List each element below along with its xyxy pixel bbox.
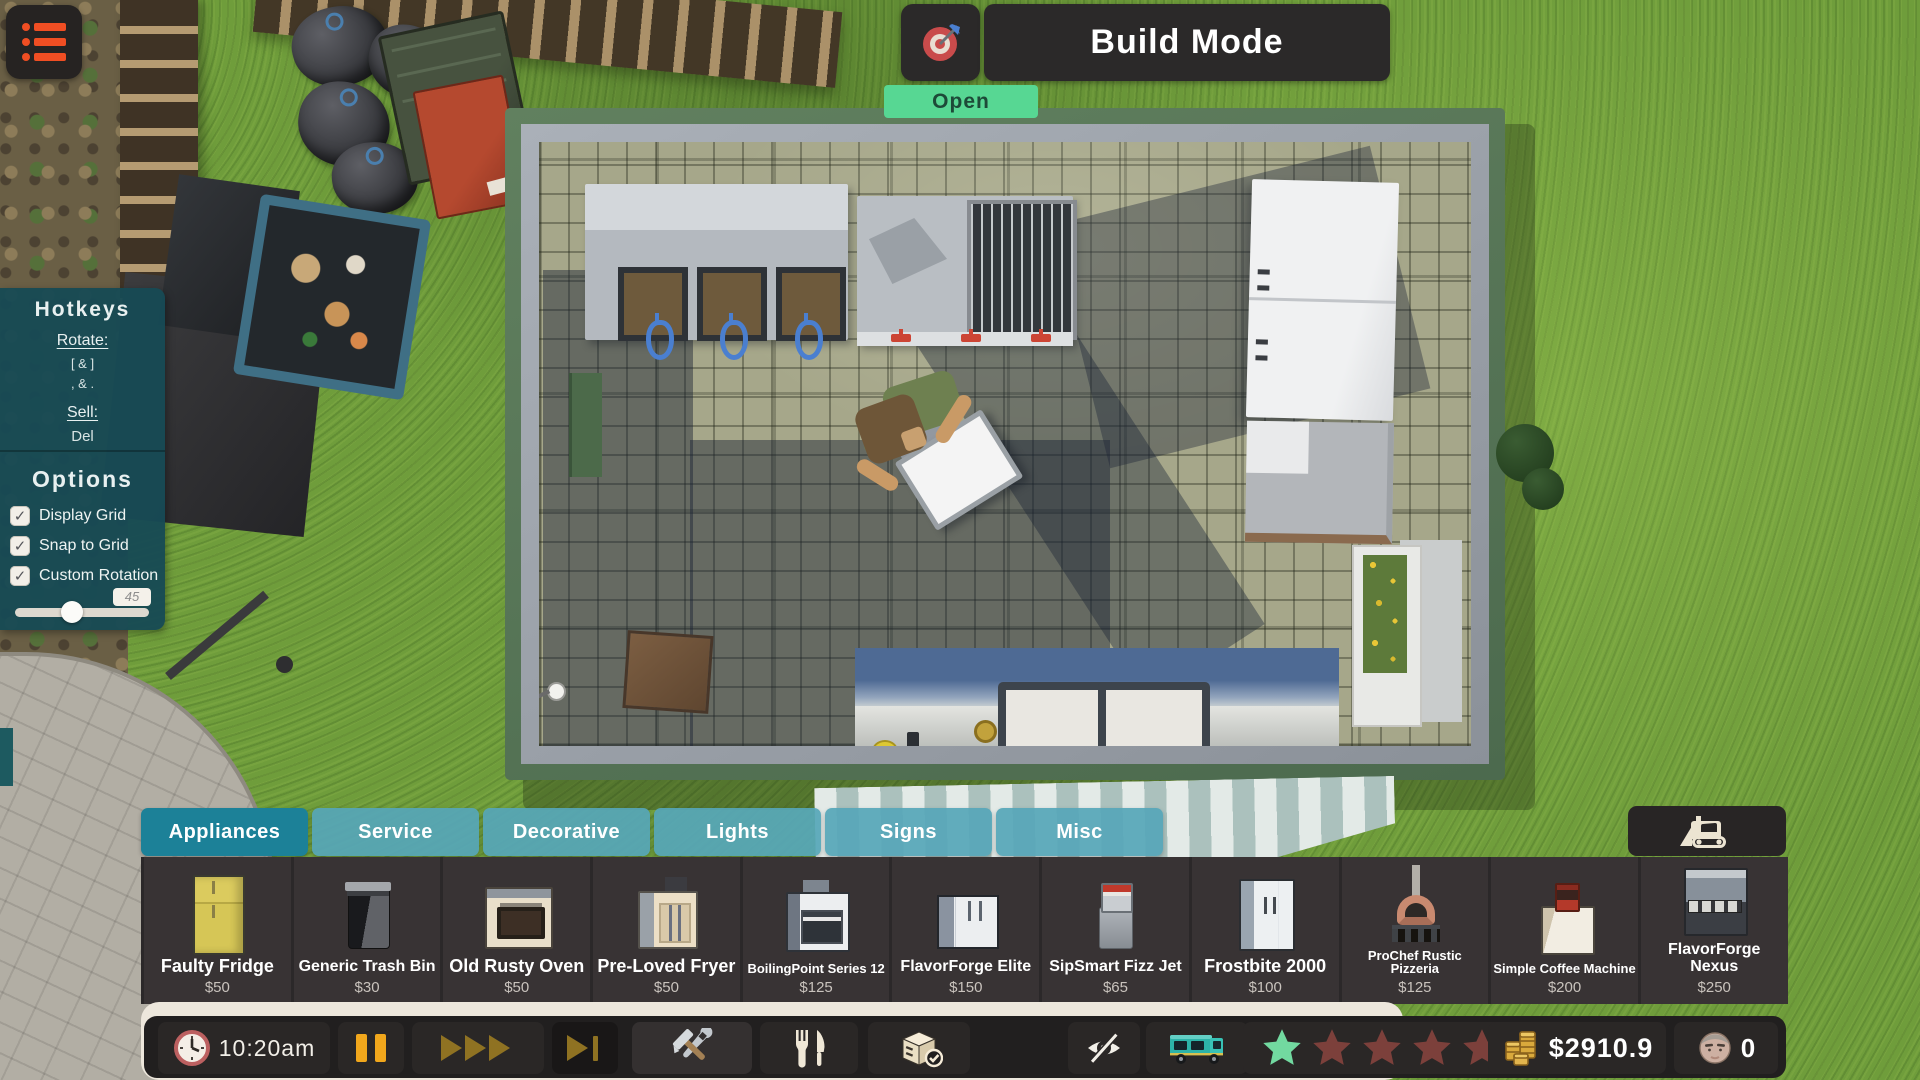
rotation-slider[interactable] xyxy=(15,608,149,617)
wooden-stool xyxy=(622,630,713,714)
shop-item-frostbite-2000[interactable]: Frostbite 2000 $100 xyxy=(1189,857,1339,1004)
rotate-keys: , & . xyxy=(0,376,165,391)
check-icon: ✓ xyxy=(14,567,27,585)
shop-item-icon xyxy=(1677,856,1751,940)
pause-button[interactable] xyxy=(338,1022,404,1074)
fast-forward-button[interactable] xyxy=(412,1022,544,1074)
tab-label: Appliances xyxy=(169,821,281,843)
shop-item-icon xyxy=(1528,876,1602,960)
shop-item-name: ProChef Rustic Pizzeria xyxy=(1343,949,1487,976)
shop-item-faulty-fridge[interactable]: Faulty Fridge $50 xyxy=(141,857,291,1004)
tab-decorative[interactable]: Decorative xyxy=(483,808,650,856)
shop-item-price: $100 xyxy=(1248,979,1281,996)
star-icon xyxy=(1260,1026,1304,1070)
star-icon xyxy=(1410,1026,1454,1070)
tab-service[interactable]: Service xyxy=(312,808,479,856)
flower-planter xyxy=(1352,545,1422,727)
demolish-mode-button[interactable] xyxy=(1628,806,1786,856)
white-fridge xyxy=(1246,179,1399,421)
mode-title: Build Mode xyxy=(1090,23,1283,62)
slider-thumb[interactable] xyxy=(61,601,83,623)
shop-item-price: $150 xyxy=(949,979,982,996)
shop-item-price: $65 xyxy=(1103,979,1128,996)
hotkeys-title: Hotkeys xyxy=(0,298,165,322)
option-custom-rotation[interactable]: ✓ Custom Rotation xyxy=(10,564,158,588)
floor-lamp xyxy=(547,682,566,701)
bulldozer-icon xyxy=(1676,812,1738,850)
shop-item-shelf: Faulty Fridge $50 Generic Trash Bin $30 … xyxy=(141,857,1788,1004)
star-icon xyxy=(1360,1026,1404,1070)
build-tools-button[interactable] xyxy=(632,1022,752,1074)
tab-label: Signs xyxy=(880,821,937,843)
display-case xyxy=(998,682,1110,746)
shop-item-name: FlavorForge Elite xyxy=(900,959,1031,976)
shop-item-name: Faulty Fridge xyxy=(161,957,274,976)
lamp-post-cap xyxy=(276,656,293,673)
pause-icon xyxy=(356,1034,367,1062)
customer-count-text: 0 xyxy=(1741,1033,1755,1064)
shop-item-icon xyxy=(1228,871,1302,955)
oven-knob xyxy=(1031,334,1051,342)
checkbox-label: Snap to Grid xyxy=(39,537,129,555)
shop-item-flavorforge-nexus[interactable]: FlavorForge Nexus $250 xyxy=(1638,857,1788,1004)
shop-item-icon xyxy=(180,871,254,955)
build-mode-icon-tile xyxy=(901,4,980,81)
shop-item-name: Generic Trash Bin xyxy=(299,959,436,976)
green-board xyxy=(569,373,602,477)
shop-item-price: $125 xyxy=(1398,979,1431,996)
shop-item-price: $200 xyxy=(1548,979,1581,996)
shop-item-price: $50 xyxy=(504,979,529,996)
shop-item-price: $50 xyxy=(205,979,230,996)
towel-hook xyxy=(795,320,823,360)
star-icon xyxy=(1310,1026,1354,1070)
oven-decor xyxy=(869,218,947,284)
mode-header: Build Mode xyxy=(984,4,1390,81)
shop-item-sipsmart-fizz-jet[interactable]: SipSmart Fizz Jet $65 xyxy=(1039,857,1189,1004)
stock-orders-button[interactable] xyxy=(868,1022,970,1074)
tab-signs[interactable]: Signs xyxy=(825,808,992,856)
game-screen: Build Mode Open Hotkeys Rotate: [ & ] , … xyxy=(0,0,1920,1080)
food-truck-icon xyxy=(1168,1029,1226,1067)
customer-face-icon xyxy=(1697,1030,1733,1066)
shop-item-icon xyxy=(480,871,554,955)
kitchen-counter xyxy=(585,184,848,340)
shop-item-price: $125 xyxy=(799,979,832,996)
shop-item-price: $30 xyxy=(355,979,380,996)
shop-item-simple-coffee-machine[interactable]: Simple Coffee Machine $200 xyxy=(1488,857,1638,1004)
shop-item-icon xyxy=(629,871,703,955)
main-menu-button[interactable] xyxy=(6,5,82,79)
box-check-icon xyxy=(895,1027,943,1069)
category-tabs: AppliancesServiceDecorativeLightsSignsMi… xyxy=(141,808,1163,856)
open-status-button[interactable]: Open xyxy=(884,85,1038,118)
skip-bar-icon xyxy=(593,1036,598,1061)
food-truck-button[interactable] xyxy=(1146,1022,1248,1074)
money-display: $2910.9 xyxy=(1488,1022,1666,1074)
shop-item-name: Simple Coffee Machine xyxy=(1493,962,1635,976)
option-display-grid[interactable]: ✓ Display Grid xyxy=(10,504,126,528)
clock-icon xyxy=(173,1029,211,1067)
shop-item-prochef-rustic-pizzeria[interactable]: ProChef Rustic Pizzeria $125 xyxy=(1339,857,1489,1004)
shop-item-name: Old Rusty Oven xyxy=(449,957,584,976)
option-snap-to-grid[interactable]: ✓ Snap to Grid xyxy=(10,534,129,558)
chef-character xyxy=(858,378,1008,538)
fork-knife-icon xyxy=(787,1027,831,1069)
customers-display: 0 xyxy=(1674,1022,1778,1074)
fast-forward-icon xyxy=(465,1035,486,1061)
shop-item-icon xyxy=(929,873,1003,957)
check-icon: ✓ xyxy=(14,507,27,525)
bush xyxy=(1522,468,1564,510)
shop-item-name: BoilingPoint Series 12 xyxy=(747,962,884,976)
shop-item-icon xyxy=(779,876,853,960)
shop-item-pre-loved-fryer[interactable]: Pre-Loved Fryer $50 xyxy=(590,857,740,1004)
tab-lights[interactable]: Lights xyxy=(654,808,821,856)
shop-item-price: $50 xyxy=(654,979,679,996)
status-bar: 10:20am xyxy=(144,1016,1786,1078)
pause-icon xyxy=(375,1034,386,1062)
check-icon: ✓ xyxy=(14,537,27,555)
fast-forward-icon xyxy=(489,1035,510,1061)
fast-forward-icon xyxy=(441,1035,462,1061)
coins-icon xyxy=(1501,1028,1541,1068)
kitchen-floor xyxy=(539,142,1471,746)
shop-item-price: $250 xyxy=(1698,979,1731,996)
shop-item-generic-trash-bin[interactable]: Generic Trash Bin $30 xyxy=(291,857,441,1004)
checkbox-label: Custom Rotation xyxy=(39,567,158,585)
shop-item-flavorforge-elite[interactable]: FlavorForge Elite $150 xyxy=(889,857,1039,1004)
checkbox-label: Display Grid xyxy=(39,507,126,525)
tab-label: Misc xyxy=(1056,821,1102,843)
tab-appliances[interactable]: Appliances xyxy=(141,808,308,856)
skip-button[interactable] xyxy=(552,1022,618,1074)
shop-item-icon xyxy=(1378,863,1452,947)
prep-table xyxy=(1245,421,1394,545)
hide-ui-button[interactable] xyxy=(1068,1022,1140,1074)
skip-icon xyxy=(567,1035,588,1061)
eye-slash-icon xyxy=(1085,1031,1123,1065)
money-text: $2910.9 xyxy=(1549,1033,1654,1064)
options-title: Options xyxy=(0,466,165,493)
blue-dumpster xyxy=(233,194,431,401)
menu-food-button[interactable] xyxy=(760,1022,858,1074)
tab-label: Service xyxy=(358,821,433,843)
tab-label: Lights xyxy=(706,821,769,843)
teal-object xyxy=(0,728,13,786)
shop-item-icon xyxy=(1078,873,1152,957)
clock-display: 10:20am xyxy=(158,1022,330,1074)
hamburger-list-icon xyxy=(20,19,68,65)
checkbox[interactable]: ✓ xyxy=(10,536,30,556)
target-icon xyxy=(918,20,964,66)
hammer-wrench-icon xyxy=(669,1028,715,1068)
display-case xyxy=(1098,682,1210,746)
shop-item-icon xyxy=(330,873,404,957)
towel-hook xyxy=(720,320,748,360)
time-text: 10:20am xyxy=(219,1035,316,1062)
rotate-label: Rotate: xyxy=(0,332,165,350)
shop-item-name: Frostbite 2000 xyxy=(1204,957,1326,976)
tab-misc[interactable]: Misc xyxy=(996,808,1163,856)
oven-unit xyxy=(857,196,1073,344)
rotate-keys: [ & ] xyxy=(0,356,165,371)
rating-stars xyxy=(1243,1022,1521,1074)
tip-jar xyxy=(974,720,997,743)
restaurant-building xyxy=(505,108,1505,780)
lamp-post xyxy=(165,591,269,680)
shop-item-name: FlavorForge Nexus xyxy=(1642,942,1786,976)
shop-item-name: Pre-Loved Fryer xyxy=(597,957,735,976)
checkbox[interactable]: ✓ xyxy=(10,506,30,526)
shop-item-old-rusty-oven[interactable]: Old Rusty Oven $50 xyxy=(440,857,590,1004)
oven-grate xyxy=(967,200,1077,340)
rotation-value-field[interactable]: 45 xyxy=(113,588,151,606)
oven-knob xyxy=(961,334,981,342)
tab-label: Decorative xyxy=(513,821,620,843)
hotkeys-options-panel: Hotkeys Rotate: [ & ] , & . Sell: Del Op… xyxy=(0,288,165,630)
sell-key: Del xyxy=(0,428,165,445)
oven-knob xyxy=(891,334,911,342)
phone-prop xyxy=(907,732,919,746)
panel-divider xyxy=(0,450,165,452)
shop-item-name: SipSmart Fizz Jet xyxy=(1049,959,1181,976)
shop-item-boilingpoint-series-12[interactable]: BoilingPoint Series 12 $125 xyxy=(740,857,890,1004)
sell-label: Sell: xyxy=(0,404,165,422)
checkbox[interactable]: ✓ xyxy=(10,566,30,586)
towel-hook xyxy=(646,320,674,360)
